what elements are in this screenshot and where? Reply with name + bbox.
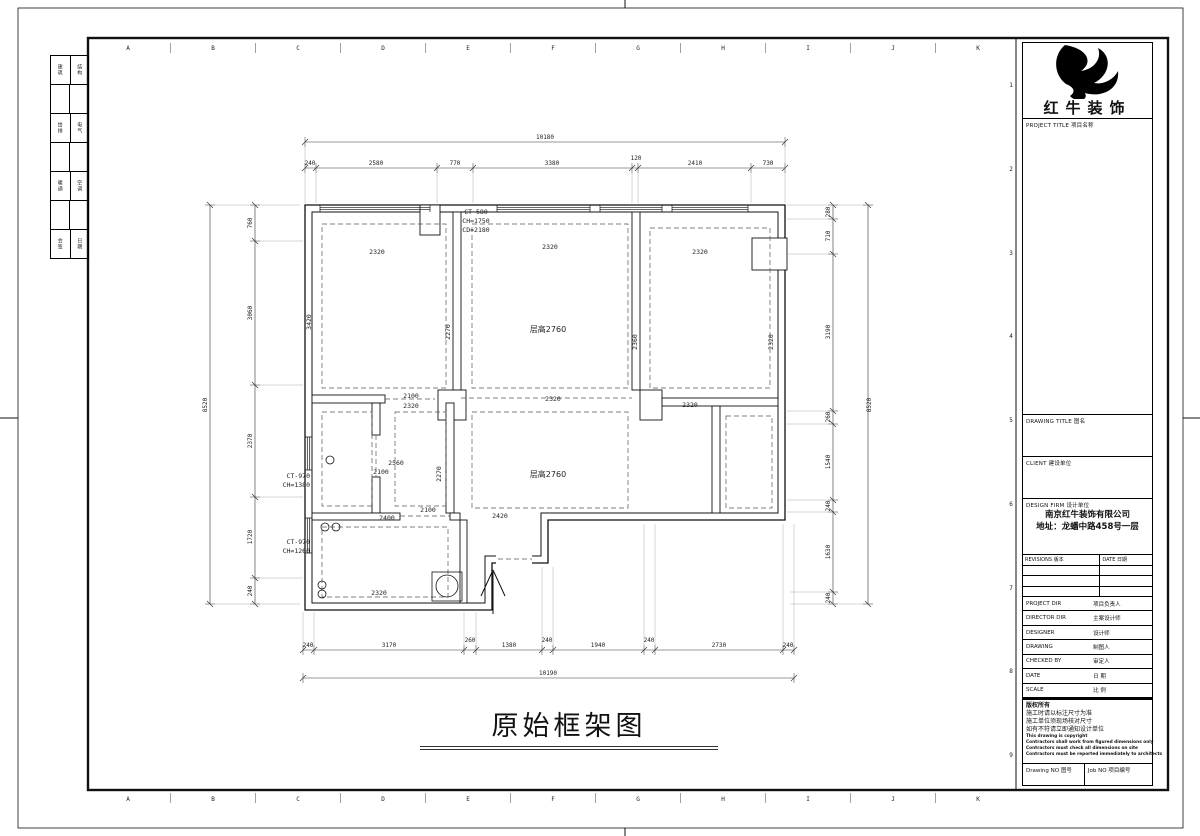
- signoff-cell: 结构: [71, 56, 90, 84]
- dim-label: 2560: [388, 459, 404, 467]
- grid-letter: J: [891, 796, 895, 803]
- person-row: PROJECT DIR 项目负责人: [1023, 597, 1152, 611]
- grid-letter: C: [296, 45, 300, 52]
- label-en: DRAWING: [1023, 644, 1093, 650]
- dim-label: 2580: [369, 160, 384, 167]
- dim-label: 240: [303, 642, 314, 649]
- revisions-section: REVISIONS 版本 DATE 日期: [1023, 555, 1152, 597]
- dim-label: 2270: [444, 324, 452, 340]
- dim-label: 730: [763, 160, 774, 167]
- dim-label: 2320: [767, 334, 775, 350]
- grid-number: 2: [1009, 166, 1013, 173]
- floor-plan-walls: [305, 205, 787, 610]
- dim-label: 760: [247, 217, 254, 228]
- label-en: PROJECT TITLE: [1026, 123, 1069, 129]
- bull-logo-icon: [1045, 43, 1131, 99]
- section-label: DESIGN FIRM 设计单位: [1023, 499, 1152, 509]
- firm-address: 地址：龙蟠中路458号一层: [1023, 521, 1152, 533]
- window-label: CH=1260: [283, 547, 310, 555]
- drawing-title: 原始框架图: [420, 704, 718, 750]
- revision-row-empty: [1023, 566, 1152, 577]
- dim-label: 1720: [247, 529, 254, 544]
- dim-label: 240: [542, 637, 553, 644]
- section-label: DRAWING TITLE 图名: [1023, 415, 1152, 425]
- revisions-header: REVISIONS 版本 DATE 日期: [1023, 555, 1152, 566]
- grid-number: 3: [1009, 250, 1013, 257]
- revision-row-empty: [1023, 587, 1152, 597]
- grid-letter: J: [891, 45, 895, 52]
- grid-letter: C: [296, 796, 300, 803]
- signoff-cell: [51, 201, 70, 229]
- dim-label: 2360: [631, 334, 639, 350]
- signoff-cell: 会签: [51, 230, 71, 258]
- signoff-row: 建筑 结构: [51, 56, 88, 85]
- grid-number: 4: [1009, 333, 1013, 340]
- signoff-row: 会签 日期: [51, 230, 88, 258]
- label-en: Job NO: [1088, 768, 1107, 774]
- drawing-title-section: DRAWING TITLE 图名: [1023, 415, 1152, 457]
- revisions-label: REVISIONS 版本: [1023, 555, 1100, 565]
- label-zh: 建设单位: [1049, 461, 1072, 467]
- dim-label: 240: [783, 642, 794, 649]
- label-zh: 制图人: [1093, 643, 1110, 651]
- grid-number: 1: [1009, 82, 1013, 89]
- title-underline: [420, 749, 718, 750]
- drawing-title-text: 原始框架图: [420, 704, 718, 743]
- label-zh: 日期: [1117, 557, 1127, 563]
- grid-ruler-top: A B C D E F G H I J K: [126, 43, 980, 53]
- signoff-cell: [70, 85, 88, 113]
- signoff-cell: 电气: [71, 114, 90, 142]
- grid-letter: E: [466, 796, 470, 803]
- dashed-outlines: [322, 224, 772, 597]
- label-zh: 设计师: [1093, 629, 1110, 637]
- signoff-strip: 建筑 结构 给排 电气 暖通 空调 会签 日期: [50, 55, 89, 259]
- label-en: DATE: [1102, 557, 1115, 563]
- window-label: CD=2180: [462, 226, 489, 234]
- label-zh: 版本: [1054, 557, 1064, 563]
- dim-label: 2100: [420, 506, 436, 514]
- label-en: REVISIONS: [1025, 557, 1052, 563]
- signoff-cell: [51, 143, 70, 171]
- project-title-section: PROJECT TITLE 项目名称: [1023, 119, 1152, 415]
- grid-letter: G: [636, 796, 640, 803]
- signoff-cell: [51, 85, 70, 113]
- grid-number: 7: [1009, 585, 1013, 592]
- grid-letter: A: [126, 45, 130, 52]
- dim-label: 2320: [371, 589, 387, 597]
- section-label: CLIENT 建设单位: [1023, 457, 1152, 467]
- firm-name: 南京红牛装饰有限公司: [1023, 509, 1152, 521]
- grid-letter: K: [976, 45, 980, 52]
- copyright-line: Contractors must be reported immediately…: [1026, 752, 1149, 758]
- label-en: CLIENT: [1026, 461, 1047, 467]
- dim-label: 2400: [379, 514, 395, 522]
- dimension-chain-right: 8520 280 710 3190 260 1540 240 1630 240: [787, 202, 873, 607]
- dim-label: 2320: [682, 401, 698, 409]
- grid-letter: H: [721, 45, 725, 52]
- design-firm-section: DESIGN FIRM 设计单位 南京红牛装饰有限公司 地址：龙蟠中路458号一…: [1023, 499, 1152, 555]
- grid-ruler-bottom: A B C D E F G H I J K: [126, 793, 980, 803]
- dim-label: 8520: [202, 397, 209, 412]
- dim-label: 2370: [247, 433, 254, 448]
- dim-label: 10180: [536, 134, 554, 141]
- section-label: PROJECT TITLE 项目名称: [1023, 119, 1152, 129]
- dim-label: 2320: [542, 243, 558, 251]
- signoff-cell: 空调: [71, 172, 90, 200]
- window-label: CT-580: [464, 208, 488, 216]
- label-zh: 项目编号: [1108, 768, 1130, 774]
- dim-label: 3380: [545, 160, 560, 167]
- windows: [305, 205, 748, 553]
- dim-label: 120: [631, 155, 642, 162]
- dim-label: 240: [644, 637, 655, 644]
- label-zh: 项目名称: [1071, 123, 1094, 129]
- title-block-box: 红牛装饰 PROJECT TITLE 项目名称 DRAWING TITLE 图名…: [1022, 42, 1153, 786]
- signoff-row-empty: [51, 85, 88, 114]
- label-en: DIRECTOR DIR: [1023, 615, 1093, 621]
- floor-height-label: 层高2760: [530, 469, 566, 479]
- person-row: DRAWING 制图人: [1023, 640, 1152, 654]
- floor-height-label: 层高2760: [530, 324, 566, 334]
- grid-number: 9: [1009, 752, 1013, 759]
- dim-label: 2100: [403, 392, 419, 400]
- grid-letter: B: [211, 45, 215, 52]
- person-row: SCALE 比 例: [1023, 684, 1152, 698]
- grid-letter: I: [806, 796, 810, 803]
- signoff-cell: 建筑: [51, 56, 71, 84]
- grid-letter: E: [466, 45, 470, 52]
- dim-label: 10190: [539, 670, 557, 677]
- label-zh: 项目负责人: [1093, 600, 1121, 608]
- persons-section: PROJECT DIR 项目负责人 DIRECTOR DIR 主案设计师 DES…: [1023, 597, 1152, 698]
- signoff-cell: 暖通: [51, 172, 71, 200]
- dim-label: 3190: [825, 324, 832, 339]
- signoff-row-empty: [51, 143, 88, 172]
- label-zh: 日 期: [1093, 672, 1106, 680]
- window-label: CH=1380: [283, 481, 310, 489]
- label-zh: 主案设计师: [1093, 614, 1121, 622]
- label-en: DESIGNER: [1023, 630, 1093, 636]
- window-label: CH=1750: [462, 217, 489, 225]
- dim-label: 240: [247, 585, 254, 596]
- grid-ruler-right: 1 2 3 4 5 6 7 8 9: [1009, 82, 1013, 759]
- dim-label: 280: [825, 206, 832, 217]
- dim-label: 1540: [825, 454, 832, 469]
- grid-letter: D: [381, 45, 385, 52]
- signoff-row: 给排 电气: [51, 114, 88, 143]
- dim-label: 2730: [712, 642, 727, 649]
- grid-number: 8: [1009, 668, 1013, 675]
- client-section: CLIENT 建设单位: [1023, 457, 1152, 499]
- person-row: DIRECTOR DIR 主案设计师: [1023, 611, 1152, 625]
- dim-label: 240: [825, 500, 832, 511]
- signoff-cell: [70, 201, 88, 229]
- dim-label: 3420: [305, 314, 313, 330]
- dim-label: 260: [825, 411, 832, 422]
- dim-label: 1380: [502, 642, 517, 649]
- job-no-label: Job NO 项目编号: [1085, 764, 1133, 785]
- logo-section: 红牛装饰: [1023, 43, 1152, 119]
- copyright-line: 施工时请以标注尺寸为准: [1026, 710, 1149, 718]
- dim-label: 2410: [688, 160, 703, 167]
- grid-letter: G: [636, 45, 640, 52]
- dim-label: 240: [825, 592, 832, 603]
- signoff-cell: [70, 143, 88, 171]
- copyright-section: 版权所有 施工时请以标注尺寸为准 施工单位须现场核对尺寸 如有不符请立即通知设计…: [1023, 700, 1152, 764]
- dim-label: 2320: [545, 395, 561, 403]
- grid-letter: D: [381, 796, 385, 803]
- dim-label: 710: [825, 230, 832, 241]
- signoff-row: 暖通 空调: [51, 172, 88, 201]
- title-block: 红牛装饰 PROJECT TITLE 项目名称 DRAWING TITLE 图名…: [1016, 38, 1168, 790]
- dim-label: 3060: [247, 305, 254, 320]
- dim-label: 2420: [492, 512, 508, 520]
- dim-label: 2320: [692, 248, 708, 256]
- grid-letter: I: [806, 45, 810, 52]
- drawing-sheet: A B C D E F G H I J K A B C D E F G H I …: [0, 0, 1200, 836]
- label-zh: 图名: [1074, 419, 1085, 425]
- label-zh: 图号: [1061, 768, 1072, 774]
- label-en: PROJECT DIR: [1023, 601, 1093, 607]
- dim-label: 2270: [435, 466, 443, 482]
- dim-label: 2320: [403, 402, 419, 410]
- label-en: SCALE: [1023, 687, 1093, 693]
- copyright-line: 版权所有: [1026, 702, 1149, 710]
- dimension-chain-top: 10180 240 2580 770 3380 120 2410 730: [302, 134, 788, 203]
- label-zh: 比 例: [1093, 686, 1106, 694]
- copyright-line: 如有不符请立即通知设计单位: [1026, 726, 1149, 734]
- window-label: CT-970: [287, 538, 311, 546]
- dim-label: 8520: [866, 397, 873, 412]
- brand-name: 红牛装饰: [1043, 97, 1131, 118]
- dim-label: 1630: [825, 544, 832, 559]
- revision-date-label: DATE 日期: [1100, 555, 1152, 565]
- revision-row-empty: [1023, 576, 1152, 587]
- dim-label: 260: [465, 637, 476, 644]
- title-underline: [420, 746, 718, 747]
- grid-letter: F: [551, 796, 555, 803]
- label-en: CHECKED BY: [1023, 658, 1093, 664]
- grid-letter: H: [721, 796, 725, 803]
- grid-letter: A: [126, 796, 130, 803]
- dim-label: 240: [305, 160, 316, 167]
- drawing-no-label: Drawing NO 图号: [1023, 764, 1085, 785]
- dim-label: 1940: [591, 642, 606, 649]
- label-en: DATE: [1023, 673, 1093, 679]
- copyright-line: 施工单位须现场核对尺寸: [1026, 718, 1149, 726]
- window-label: CT-970: [287, 472, 311, 480]
- dim-label: 3170: [382, 642, 397, 649]
- grid-number: 6: [1009, 501, 1013, 508]
- drawing-number-section: Drawing NO 图号 Job NO 项目编号: [1023, 764, 1152, 785]
- label-zh: 审定人: [1093, 657, 1110, 665]
- label-en: Drawing NO: [1026, 768, 1059, 774]
- grid-number: 5: [1009, 417, 1013, 424]
- signoff-cell: 日期: [71, 230, 90, 258]
- grid-letter: F: [551, 45, 555, 52]
- dim-label: 770: [450, 160, 461, 167]
- person-row: CHECKED BY 审定人: [1023, 655, 1152, 669]
- dim-label: 2320: [369, 248, 385, 256]
- person-row: DESIGNER 设计师: [1023, 626, 1152, 640]
- signoff-row-empty: [51, 201, 88, 230]
- grid-letter: B: [211, 796, 215, 803]
- label-en: DRAWING TITLE: [1026, 419, 1072, 425]
- person-row: DATE 日 期: [1023, 669, 1152, 683]
- dim-label: 2100: [373, 468, 389, 476]
- grid-letter: K: [976, 796, 980, 803]
- signoff-cell: 给排: [51, 114, 71, 142]
